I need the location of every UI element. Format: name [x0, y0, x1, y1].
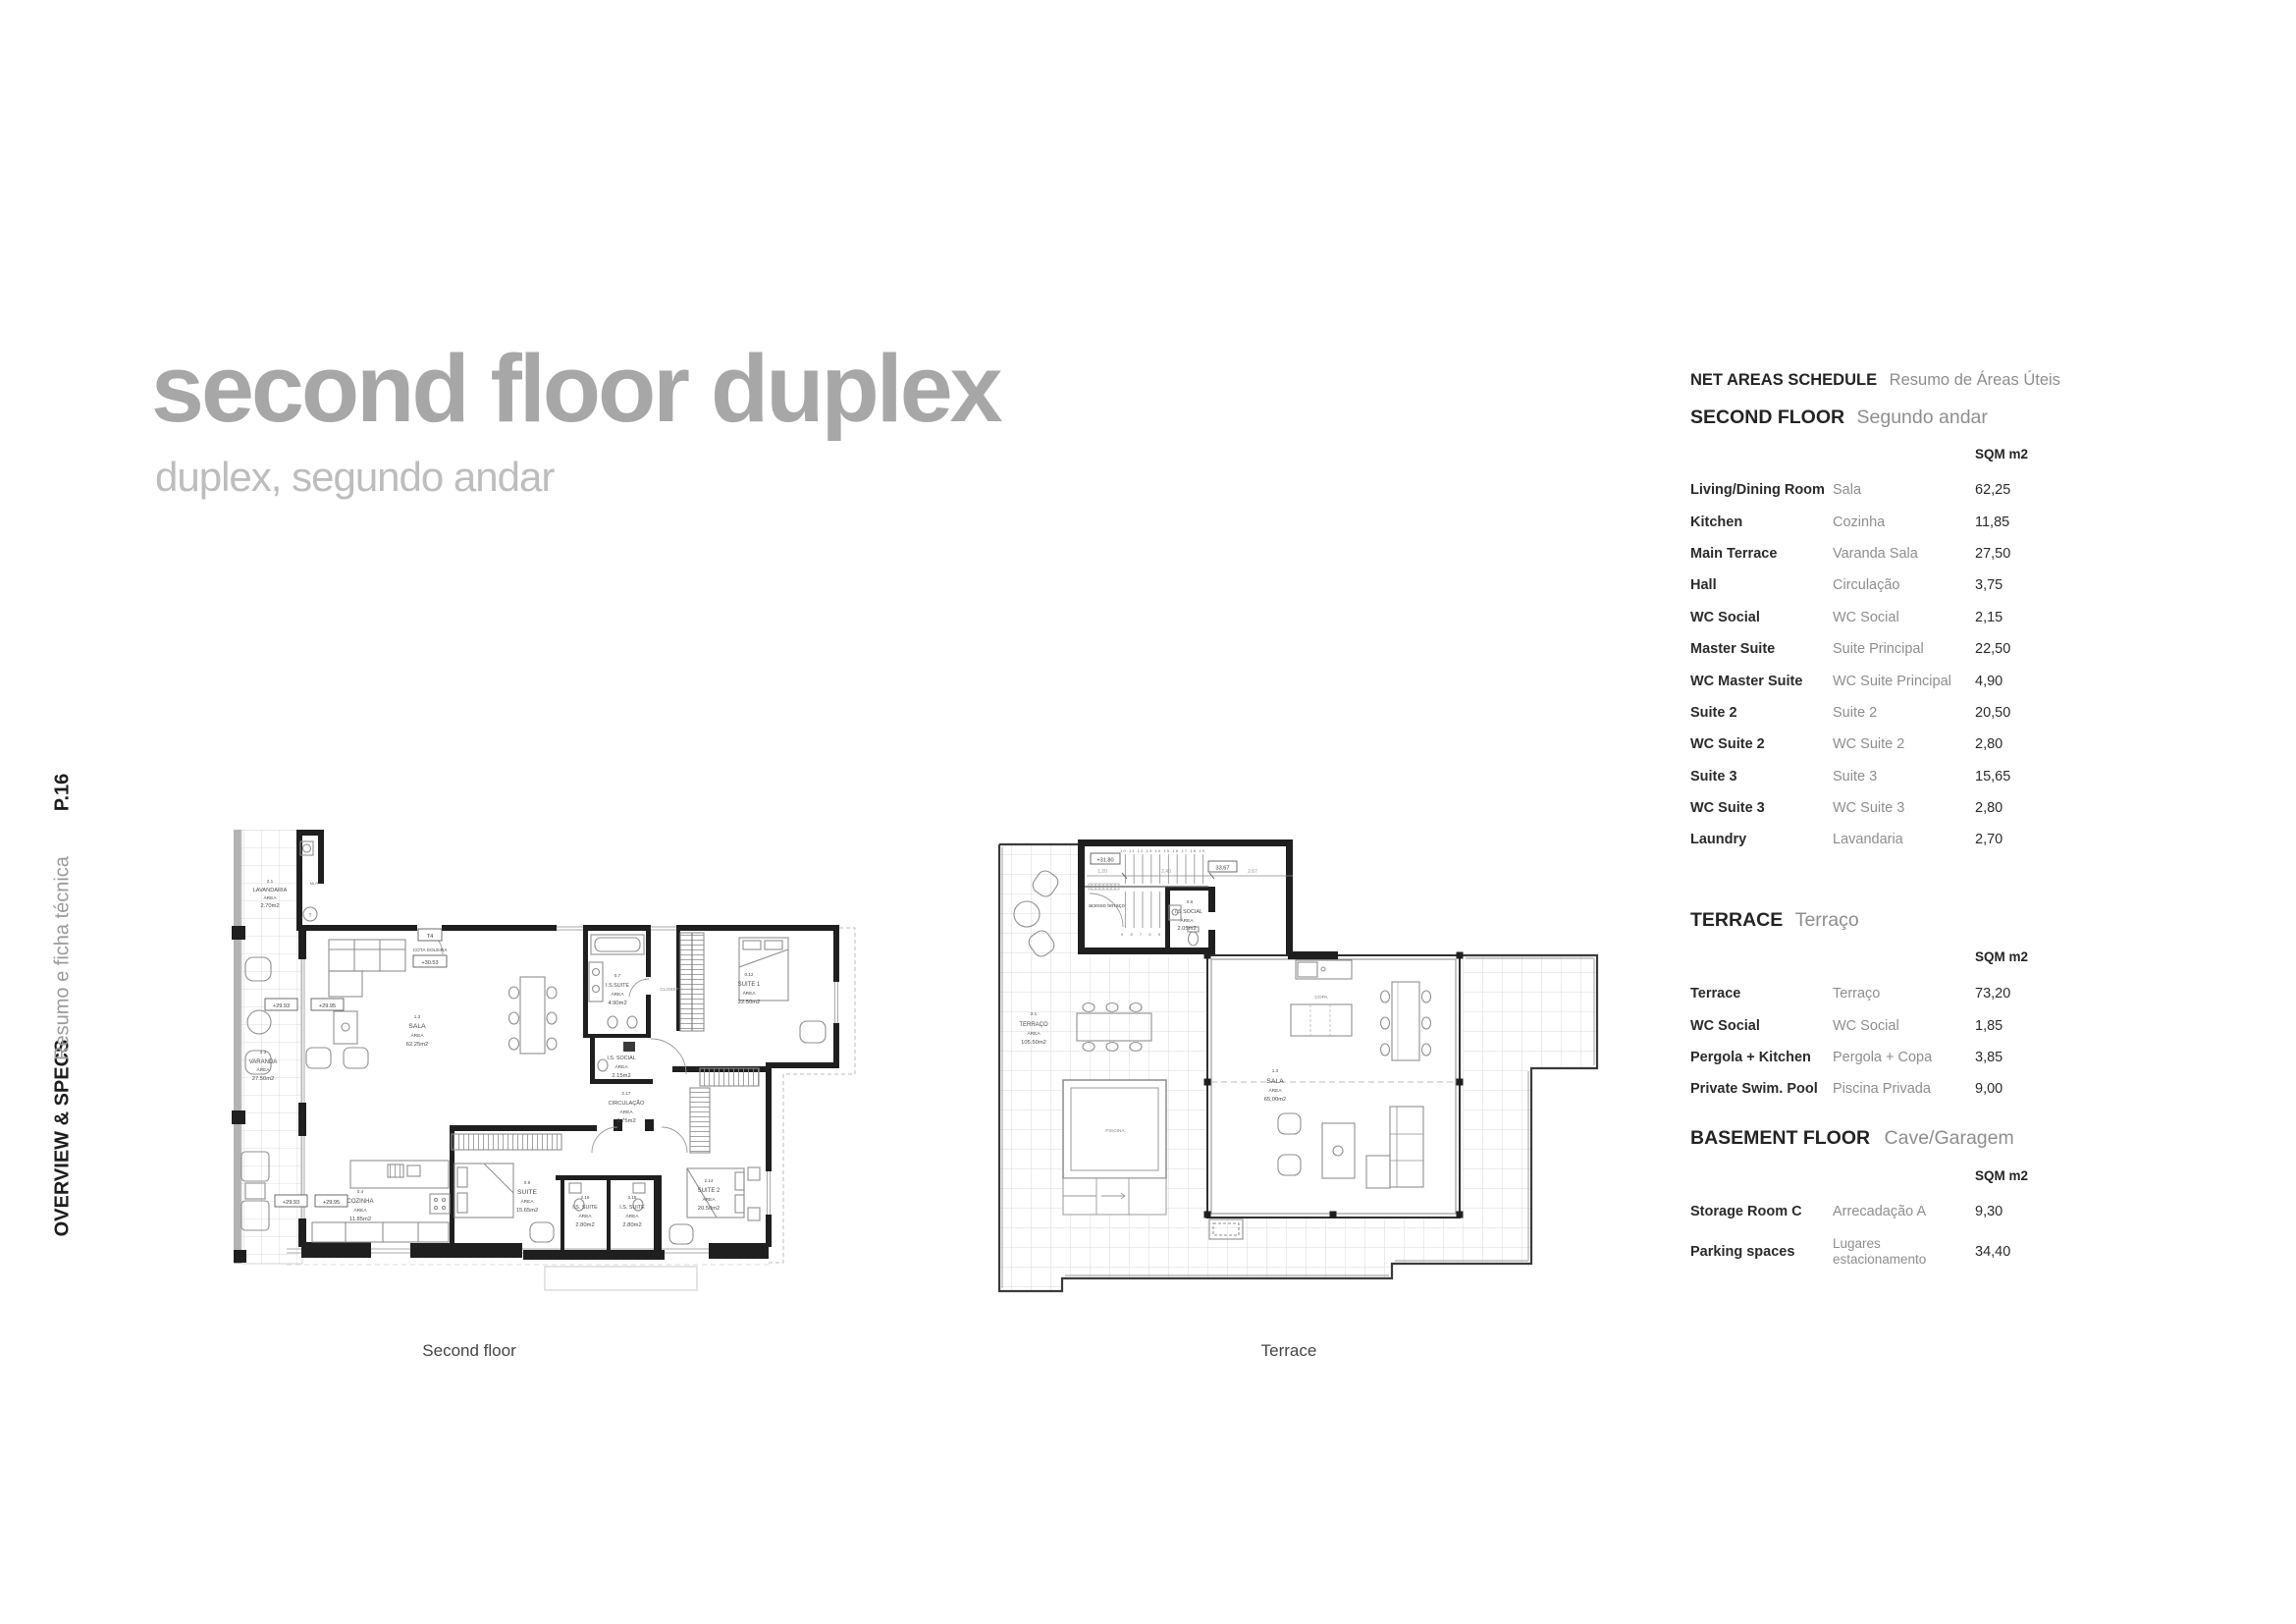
- row-pt: Suite 2: [1833, 705, 1975, 721]
- svg-text:ÁREA: ÁREA: [263, 894, 277, 901]
- unit-header: SQM m2: [1975, 447, 2028, 461]
- svg-text:65,00m2: 65,00m2: [1264, 1097, 1287, 1103]
- svg-text:4.90m2: 4.90m2: [608, 1001, 626, 1006]
- room-label-wc-master: 0.7 I.S.SUITE ÁREA 4.90m2: [606, 973, 629, 1006]
- row-en: Kitchen: [1690, 514, 1833, 530]
- row-value: 62,25: [1975, 482, 2112, 498]
- cota-label: COTA SOLEIRA: [413, 947, 449, 953]
- row-en: WC Social: [1690, 1018, 1833, 1034]
- svg-text:ÁREA: ÁREA: [578, 1213, 592, 1219]
- section-title-terrace: TERRACE Terraço: [1690, 909, 1859, 932]
- elevation-label: +31.80: [1096, 858, 1113, 864]
- svg-text:SALA: SALA: [1266, 1078, 1284, 1085]
- row-pt: Piscina Privada: [1833, 1081, 1975, 1097]
- svg-text:ÁREA: ÁREA: [1027, 1030, 1041, 1037]
- table-row: HallCirculação3,75: [1690, 569, 2122, 601]
- table-row: WC SocialWC Social2,15: [1690, 602, 2122, 633]
- row-en: Laundry: [1690, 832, 1833, 847]
- svg-text:ÁREA: ÁREA: [1180, 917, 1194, 924]
- sidebar-section-title: OVERVIEW & SPECS: [52, 1040, 75, 1237]
- svg-text:2.80m2: 2.80m2: [575, 1222, 594, 1228]
- pergola-room: COPA 1.3 SALA ÁREA 65,00m2: [1204, 951, 1464, 1239]
- row-en: Living/Dining Room: [1690, 482, 1833, 498]
- svg-text:ÁREA: ÁREA: [742, 990, 756, 997]
- svg-text:62.25m2: 62.25m2: [406, 1042, 429, 1048]
- row-pt: Varanda Sala: [1833, 546, 1975, 562]
- elevation-label: +29.93: [283, 1200, 299, 1206]
- svg-text:1.3: 1.3: [1272, 1068, 1279, 1073]
- row-pt: WC Social: [1833, 1018, 1975, 1034]
- svg-text:3.15: 3.15: [628, 1195, 637, 1200]
- section-title-en: BASEMENT FLOOR: [1690, 1127, 1870, 1149]
- section-title-second-floor: SECOND FLOOR Segundo andar: [1690, 406, 1988, 429]
- svg-text:I.S.SUITE: I.S.SUITE: [606, 983, 629, 989]
- svg-text:ÁREA: ÁREA: [410, 1032, 424, 1039]
- table-row: Main TerraceVaranda Sala27,50: [1690, 538, 2122, 569]
- section-title-en: SECOND FLOOR: [1690, 406, 1844, 428]
- door-type-label: T4: [427, 934, 434, 940]
- row-pt: WC Suite Principal: [1833, 674, 1975, 689]
- svg-text:0.7: 0.7: [614, 973, 621, 978]
- row-pt: Arrecadação A: [1833, 1204, 1975, 1219]
- row-value: 2,80: [1975, 800, 2112, 816]
- row-en: Suite 2: [1690, 705, 1833, 721]
- svg-text:20.50m2: 20.50m2: [698, 1206, 721, 1212]
- room-laundry: T MLR: [296, 830, 324, 931]
- room-label-wc-num: 0.6: [1187, 899, 1194, 904]
- svg-text:0.4: 0.4: [357, 1189, 364, 1194]
- svg-text:15.65m2: 15.65m2: [516, 1208, 539, 1214]
- table-row: Suite 3Suite 315,65: [1690, 761, 2122, 792]
- row-en: WC Suite 3: [1690, 800, 1833, 816]
- svg-text:ÁREA: ÁREA: [702, 1196, 716, 1203]
- svg-text:105.50m2: 105.50m2: [1021, 1040, 1046, 1046]
- table-row: Suite 2Suite 220,50: [1690, 697, 2122, 729]
- svg-text:2.80m2: 2.80m2: [622, 1222, 641, 1228]
- row-en: Suite 3: [1690, 769, 1833, 785]
- pool-label: PISCINA: [1105, 1128, 1125, 1134]
- dimension: 2,40: [1161, 869, 1171, 875]
- section-title-pt: Cave/Garagem: [1885, 1127, 2014, 1149]
- room-label-wc-social: I.S. SOCIAL ÁREA 2.15m2: [607, 1056, 635, 1079]
- row-pt-line2: estacionamento: [1833, 1252, 1975, 1268]
- page-number: P.16: [52, 774, 75, 812]
- svg-text:2.17: 2.17: [622, 1091, 631, 1096]
- svg-text:0.9: 0.9: [524, 1180, 531, 1185]
- svg-text:VARANDA: VARANDA: [249, 1059, 278, 1065]
- row-en: Parking spaces: [1690, 1244, 1833, 1260]
- svg-text:COZINHA: COZINHA: [347, 1199, 374, 1205]
- row-pt: Circulação: [1833, 577, 1975, 593]
- row-en: WC Suite 2: [1690, 736, 1833, 752]
- mark-mlr: MLR: [310, 881, 319, 886]
- row-value: 11,85: [1975, 514, 2112, 530]
- room-label-suite1: 0.12 SUITE 1 ÁREA 22.50m2: [738, 972, 761, 1005]
- table-row: Master SuiteSuite Principal22,50: [1690, 633, 2122, 665]
- row-value: 3,75: [1975, 577, 2112, 593]
- row-value: 27,50: [1975, 546, 2112, 562]
- copa-label: COPA: [1314, 995, 1328, 1001]
- row-en: Terrace: [1690, 986, 1833, 1001]
- elevation-label: +29.95: [319, 1003, 336, 1009]
- mark-t: T: [309, 913, 312, 918]
- row-pt: Lugaresestacionamento: [1833, 1236, 1975, 1268]
- swimming-pool: PISCINA: [1063, 1080, 1166, 1215]
- terrace-rows: TerraceTerraço73,20 WC SocialWC Social1,…: [1690, 978, 2122, 1106]
- row-en: WC Master Suite: [1690, 674, 1833, 689]
- room-label-suite2: 2.14 SUITE 2 ÁREA 20.50m2: [698, 1178, 721, 1212]
- svg-text:I.S. SOCIAL: I.S. SOCIAL: [607, 1056, 635, 1061]
- cota-value: +30.53: [421, 960, 438, 966]
- table-row: Living/Dining RoomSala62,25: [1690, 474, 2122, 506]
- basement-rows: Storage Room CArrecadação A9,30 Parking …: [1690, 1195, 2122, 1275]
- row-value: 15,65: [1975, 769, 2112, 785]
- table-row: WC SocialWC Social1,85: [1690, 1009, 2122, 1041]
- row-value: 22,50: [1975, 641, 2112, 657]
- table-row: Pergola + KitchenPergola + Copa3,85: [1690, 1042, 2122, 1073]
- page-title: second floor duplex: [151, 334, 1000, 444]
- row-pt: WC Social: [1833, 610, 1975, 625]
- page-subtitle: duplex, segundo andar: [155, 454, 554, 501]
- row-value: 3,85: [1975, 1050, 2112, 1065]
- floor-plan-terrace: 10 11 12 13 14 15 16 17 18 19 9 8 7 6 5 …: [991, 835, 1620, 1301]
- suite2-furniture: [687, 1068, 760, 1220]
- svg-text:SUITE 1: SUITE 1: [738, 982, 761, 988]
- table-row: WC Suite 2WC Suite 22,80: [1690, 729, 2122, 760]
- row-pt: Lavandaria: [1833, 832, 1975, 847]
- room-label-circulacao: 2.17 CIRCULAÇÃO ÁREA 3.75m2: [609, 1091, 645, 1124]
- svg-text:I.S. SUITE: I.S. SUITE: [572, 1205, 598, 1211]
- svg-text:11.85m2: 11.85m2: [349, 1217, 371, 1222]
- svg-text:2.16: 2.16: [581, 1195, 590, 1200]
- section-title-pt: Terraço: [1795, 909, 1859, 931]
- svg-text:SUITE 2: SUITE 2: [698, 1188, 721, 1194]
- row-value: 9,00: [1975, 1081, 2112, 1097]
- section-title-en: TERRACE: [1690, 909, 1783, 931]
- elevation-label: +29.93: [273, 1003, 290, 1009]
- plan-caption-terrace: Terrace: [1261, 1341, 1317, 1361]
- svg-text:2.3: 2.3: [260, 1050, 267, 1055]
- table-row: WC Suite 3WC Suite 32,80: [1690, 792, 2122, 824]
- table-row: Storage Room CArrecadação A9,30: [1690, 1195, 2122, 1228]
- table-row: LaundryLavandaria2,70: [1690, 824, 2122, 855]
- svg-text:ÁREA: ÁREA: [625, 1213, 639, 1219]
- svg-text:2.15m2: 2.15m2: [612, 1073, 630, 1079]
- second-floor-rows: Living/Dining RoomSala62,25 KitchenCozin…: [1690, 474, 2122, 856]
- section-title-basement: BASEMENT FLOOR Cave/Garagem: [1690, 1127, 2014, 1150]
- table-row: KitchenCozinha11,85: [1690, 506, 2122, 537]
- row-en: Hall: [1690, 577, 1833, 593]
- acesso-label: acesso terraço: [1089, 903, 1125, 909]
- unit-header: SQM m2: [1975, 1168, 2028, 1183]
- row-pt: Suite 3: [1833, 769, 1975, 785]
- row-value: 1,85: [1975, 1018, 2112, 1034]
- row-value: 2,80: [1975, 736, 2112, 752]
- elevation-label: +29.95: [323, 1200, 340, 1206]
- row-pt: Suite Principal: [1833, 641, 1975, 657]
- svg-text:ÁREA: ÁREA: [353, 1207, 367, 1214]
- room-label-cozinha: 0.4 COZINHA ÁREA 11.85m2: [347, 1189, 374, 1222]
- row-en: WC Social: [1690, 610, 1833, 625]
- svg-text:2.70m2: 2.70m2: [260, 903, 279, 909]
- svg-text:2.14: 2.14: [705, 1178, 714, 1183]
- table-row: TerraceTerraço73,20: [1690, 978, 2122, 1009]
- row-value: 20,50: [1975, 705, 2112, 721]
- stair-numbers-down: 9 8 7 6 5: [1121, 932, 1161, 937]
- row-value: 9,30: [1975, 1204, 2112, 1219]
- row-en: Storage Room C: [1690, 1204, 1833, 1219]
- section-title-pt: Segundo andar: [1857, 406, 1988, 428]
- walls: [287, 925, 839, 1260]
- row-pt: Pergola + Copa: [1833, 1050, 1975, 1065]
- room-label-wc: I.S SOCIAL: [1175, 909, 1202, 915]
- room-labels: 2.1 LAVANDARIA ÁREA 2.70m2 2.3 VARANDA Á…: [249, 879, 761, 1228]
- svg-text:ÁREA: ÁREA: [256, 1066, 270, 1073]
- row-en: Master Suite: [1690, 641, 1833, 657]
- room-label-suite3: 0.9 SUITE ÁREA 15.65m2: [516, 1180, 539, 1214]
- schedule-header-en: NET AREAS SCHEDULE: [1690, 371, 1877, 389]
- dimension: 1,20: [1097, 869, 1107, 875]
- unit-header: SQM m2: [1975, 949, 2028, 964]
- svg-text:I.S. SUITE: I.S. SUITE: [619, 1205, 645, 1211]
- svg-text:2.05m2: 2.05m2: [1177, 926, 1196, 932]
- floor-plan-second-floor: T MLR: [226, 830, 864, 1291]
- schedule-header-pt: Resumo de Áreas Úteis: [1890, 371, 2060, 389]
- svg-text:0.12: 0.12: [745, 972, 754, 977]
- svg-text:22.50m2: 22.50m2: [738, 1000, 761, 1005]
- row-value: 2,15: [1975, 610, 2112, 625]
- svg-text:LAVANDARIA: LAVANDARIA: [253, 888, 288, 893]
- plan-caption-second-floor: Second floor: [422, 1341, 515, 1361]
- row-value: 4,90: [1975, 674, 2112, 689]
- svg-text:2.1: 2.1: [267, 879, 274, 884]
- dimension: 2,67: [1248, 869, 1257, 875]
- row-pt: Sala: [1833, 482, 1975, 498]
- row-pt: WC Suite 2: [1833, 736, 1975, 752]
- svg-text:ÁREA: ÁREA: [520, 1198, 534, 1205]
- svg-text:ÁREA: ÁREA: [614, 1063, 628, 1070]
- room-label-sala: 1.3 SALA ÁREA 62.25m2: [406, 1014, 429, 1048]
- dashed-boundary: [769, 928, 855, 1263]
- svg-text:ÁREA: ÁREA: [611, 991, 624, 998]
- lower-floor-ghost: [545, 1267, 697, 1290]
- row-en: Pergola + Kitchen: [1690, 1050, 1833, 1065]
- svg-text:SALA: SALA: [408, 1023, 426, 1030]
- sidebar-section-subtitle: Resumo e ficha técnica: [52, 856, 75, 1060]
- table-row: Parking spaces Lugaresestacionamento 34,…: [1690, 1228, 2122, 1275]
- svg-text:3.75m2: 3.75m2: [616, 1118, 635, 1124]
- row-pt-line1: Lugares: [1833, 1236, 1881, 1251]
- svg-text:ÁREA: ÁREA: [619, 1109, 633, 1115]
- svg-text:CIRCULAÇÃO: CIRCULAÇÃO: [609, 1100, 645, 1107]
- svg-text:3.1: 3.1: [1031, 1011, 1038, 1016]
- row-pt: Terraço: [1833, 986, 1975, 1001]
- svg-text:1.3: 1.3: [414, 1014, 421, 1019]
- row-value: 73,20: [1975, 986, 2112, 1001]
- row-en: Private Swim. Pool: [1690, 1081, 1833, 1097]
- row-en: Main Terrace: [1690, 546, 1833, 562]
- table-row: Private Swim. PoolPiscina Privada9,00: [1690, 1073, 2122, 1105]
- dimension-total: 33,67: [1216, 866, 1230, 872]
- schedule-header: NET AREAS SCHEDULE Resumo de Áreas Úteis: [1690, 371, 2122, 390]
- svg-text:ÁREA: ÁREA: [1268, 1087, 1282, 1094]
- table-row: WC Master SuiteWC Suite Principal4,90: [1690, 665, 2122, 696]
- svg-text:27.50m2: 27.50m2: [252, 1076, 275, 1082]
- row-value: 2,70: [1975, 832, 2112, 847]
- page: second floor duplex duplex, segundo anda…: [0, 0, 2296, 1624]
- row-value: 34,40: [1975, 1244, 2112, 1260]
- row-pt: WC Suite 3: [1833, 800, 1975, 816]
- svg-text:SUITE: SUITE: [517, 1189, 537, 1196]
- row-pt: Cozinha: [1833, 514, 1975, 530]
- closet-label: CLOSET: [660, 987, 678, 993]
- svg-text:TERRAÇO: TERRAÇO: [1019, 1022, 1048, 1028]
